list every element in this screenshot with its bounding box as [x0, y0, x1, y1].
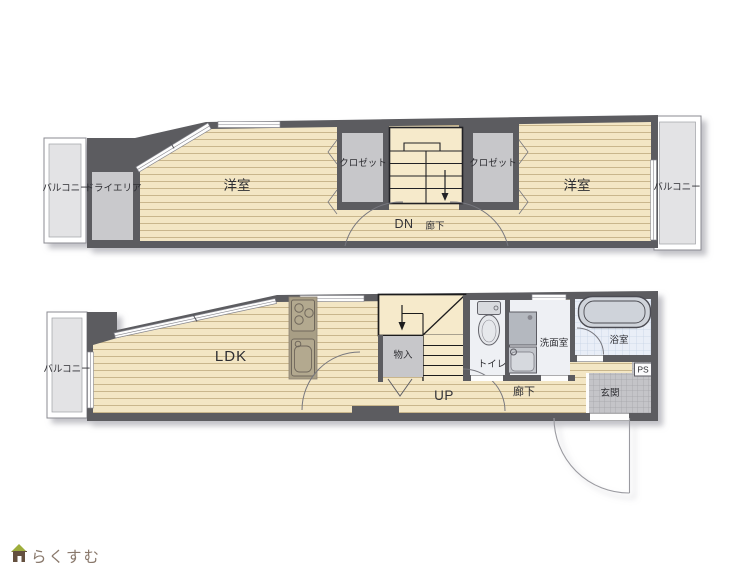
label-room-left-2f: 洋室	[224, 177, 251, 193]
label-hallway-1f: 廊下	[513, 384, 535, 398]
staircase-down	[389, 127, 463, 204]
label-storage: 物入	[393, 349, 413, 361]
window-top-2f	[218, 122, 280, 128]
stove-icon	[292, 300, 315, 331]
toilet-door-opening	[471, 376, 503, 382]
label-bathroom: 浴室	[609, 334, 628, 346]
window-top-washroom	[532, 295, 566, 301]
logo-house-icon	[11, 544, 27, 562]
kitchen-counter	[289, 297, 317, 379]
ldk-wall-stub	[352, 406, 399, 415]
label-entrance: 玄関	[600, 387, 619, 399]
label-room-right-2f: 洋室	[564, 177, 591, 193]
floor-plan-2f: バルコニー ドライエリア 洋室 クロゼット クロゼット DN 廊下 洋室 バルコ…	[42, 115, 701, 250]
entrance-door-opening	[590, 414, 629, 421]
label-closet-right: クロゼット	[469, 157, 517, 169]
label-toilet: トイレ	[478, 359, 507, 370]
closet-right	[459, 124, 528, 214]
logo-text: らくすむ	[31, 548, 101, 566]
window-left-1f	[88, 352, 94, 408]
washroom-door-opening	[541, 376, 568, 382]
door-arc-entrance	[554, 418, 630, 493]
logo: らくすむ	[11, 544, 101, 566]
floorplan-svg: バルコニー ドライエリア 洋室 クロゼット クロゼット DN 廊下 洋室 バルコ…	[0, 0, 743, 575]
label-dry-area: ドライエリア	[85, 183, 142, 194]
label-balcony-1f: バルコニー	[43, 364, 90, 375]
label-hallway-2f: 廊下	[425, 220, 444, 232]
floor-plan-1f: バルコニー LDK 物入 UP トイレ 洗面室 浴室 廊下 玄関 PS	[43, 291, 658, 493]
label-balcony-right-2f: バルコニー	[653, 182, 700, 193]
bathroom-door-opening	[577, 356, 603, 362]
label-stairs-up: UP	[434, 388, 454, 403]
floorplan-page: バルコニー ドライエリア 洋室 クロゼット クロゼット DN 廊下 洋室 バルコ…	[0, 0, 743, 575]
label-pipe-space: PS	[637, 365, 649, 375]
closet-left	[328, 124, 389, 214]
label-stairs-dn: DN	[394, 217, 413, 231]
label-washroom: 洗面室	[540, 337, 569, 349]
kitchen-sink-icon	[292, 339, 315, 376]
label-closet-left: クロゼット	[339, 157, 387, 169]
bathtub-icon	[579, 297, 651, 328]
toilet-icon	[478, 302, 501, 346]
washing-machine-icon	[509, 312, 537, 345]
entrance-step-edge	[586, 373, 589, 413]
vanity-sink-icon	[509, 347, 537, 373]
bathroom	[575, 297, 651, 363]
label-ldk: LDK	[215, 348, 247, 365]
window-right-2f	[651, 160, 657, 240]
label-balcony-left-2f: バルコニー	[42, 183, 89, 194]
